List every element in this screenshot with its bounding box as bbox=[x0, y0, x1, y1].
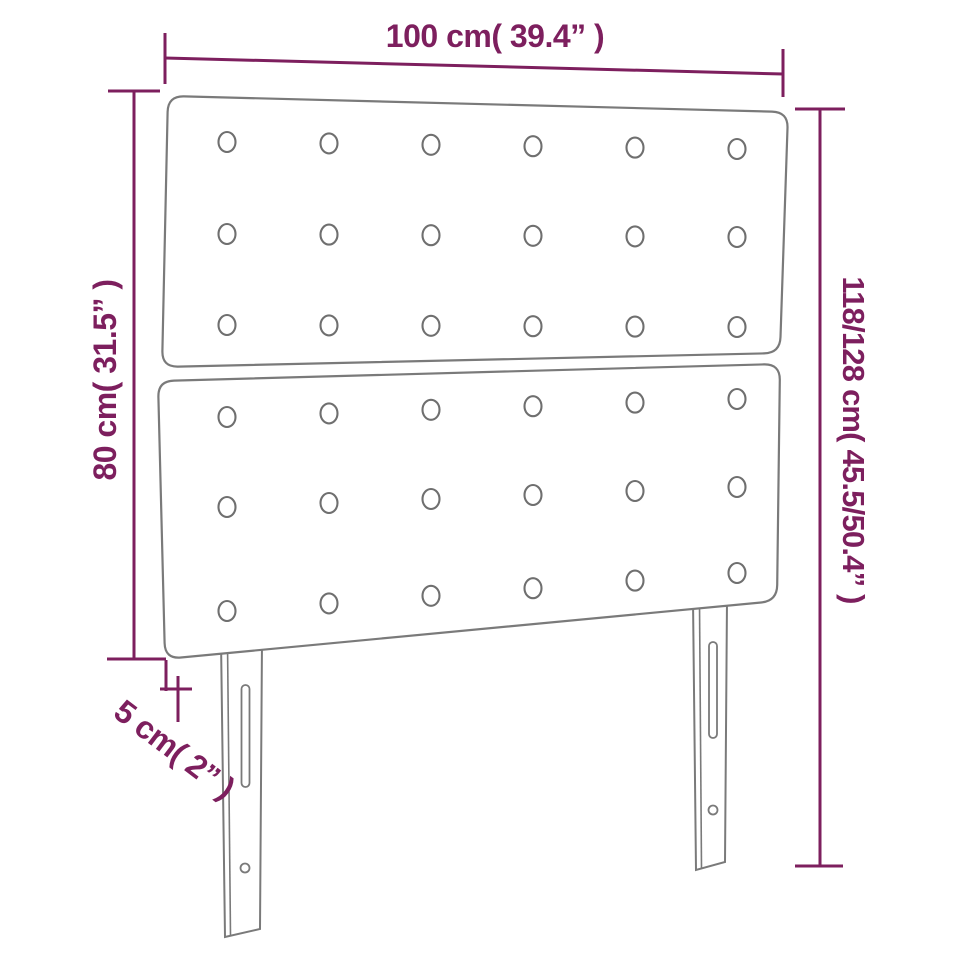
tufting-button bbox=[627, 571, 644, 591]
right-leg-slot bbox=[709, 642, 717, 738]
width-dimension-line bbox=[165, 58, 783, 74]
tufting-button bbox=[219, 497, 236, 517]
tufting-button bbox=[219, 407, 236, 427]
tufting-button bbox=[321, 493, 338, 513]
tufting-button bbox=[219, 132, 236, 152]
diagram-canvas: 100 cm( 39.4” ) 80 cm( 31.5” ) 118/128 c… bbox=[0, 0, 955, 955]
tufting-button bbox=[627, 481, 644, 501]
tufting-button bbox=[525, 136, 542, 156]
tufting-button bbox=[321, 133, 338, 153]
headboard-drawing bbox=[158, 96, 787, 937]
tufting-button bbox=[729, 477, 746, 497]
tufting-button bbox=[525, 316, 542, 336]
tufting-button bbox=[321, 315, 338, 335]
tufting-button bbox=[525, 578, 542, 598]
right-leg-hole bbox=[709, 806, 718, 815]
tufting-button bbox=[219, 315, 236, 335]
tufting-button bbox=[627, 393, 644, 413]
right-leg bbox=[693, 600, 727, 870]
tufting-button bbox=[321, 593, 338, 613]
tufting-button bbox=[525, 226, 542, 246]
tufting-button bbox=[321, 403, 338, 423]
left-height-dimension: 80 cm( 31.5” ) bbox=[87, 91, 166, 659]
tufting-button bbox=[525, 485, 542, 505]
right-height-dimension-label: 118/128 cm( 45.5/50.4” ) bbox=[836, 276, 871, 603]
headboard-upper-panel bbox=[162, 96, 787, 366]
tufting-button bbox=[729, 563, 746, 583]
tufting-button bbox=[423, 586, 440, 606]
width-dimension-label: 100 cm( 39.4” ) bbox=[386, 18, 604, 54]
tufting-button bbox=[423, 316, 440, 336]
tufting-button bbox=[525, 396, 542, 416]
tufting-button bbox=[423, 135, 440, 155]
tufting-button bbox=[423, 225, 440, 245]
tufting-button bbox=[627, 226, 644, 246]
tufting-button bbox=[627, 317, 644, 337]
tufting-button bbox=[219, 224, 236, 244]
tufting-button bbox=[321, 225, 338, 245]
tufting-button bbox=[729, 317, 746, 337]
tufting-button bbox=[627, 138, 644, 158]
headboard-lower-panel bbox=[158, 364, 779, 657]
tufting-button bbox=[729, 139, 746, 159]
tufting-button bbox=[219, 601, 236, 621]
left-leg-hole bbox=[241, 864, 250, 873]
tufting-button bbox=[729, 389, 746, 409]
tufting-button bbox=[729, 227, 746, 247]
tufting-button bbox=[423, 400, 440, 420]
tufting-button bbox=[423, 489, 440, 509]
left-height-dimension-label: 80 cm( 31.5” ) bbox=[87, 279, 123, 480]
headboard-dimension-diagram: 100 cm( 39.4” ) 80 cm( 31.5” ) 118/128 c… bbox=[0, 0, 955, 955]
width-dimension: 100 cm( 39.4” ) bbox=[165, 18, 783, 97]
left-leg-slot bbox=[242, 685, 250, 787]
right-height-dimension: 118/128 cm( 45.5/50.4” ) bbox=[795, 109, 871, 866]
